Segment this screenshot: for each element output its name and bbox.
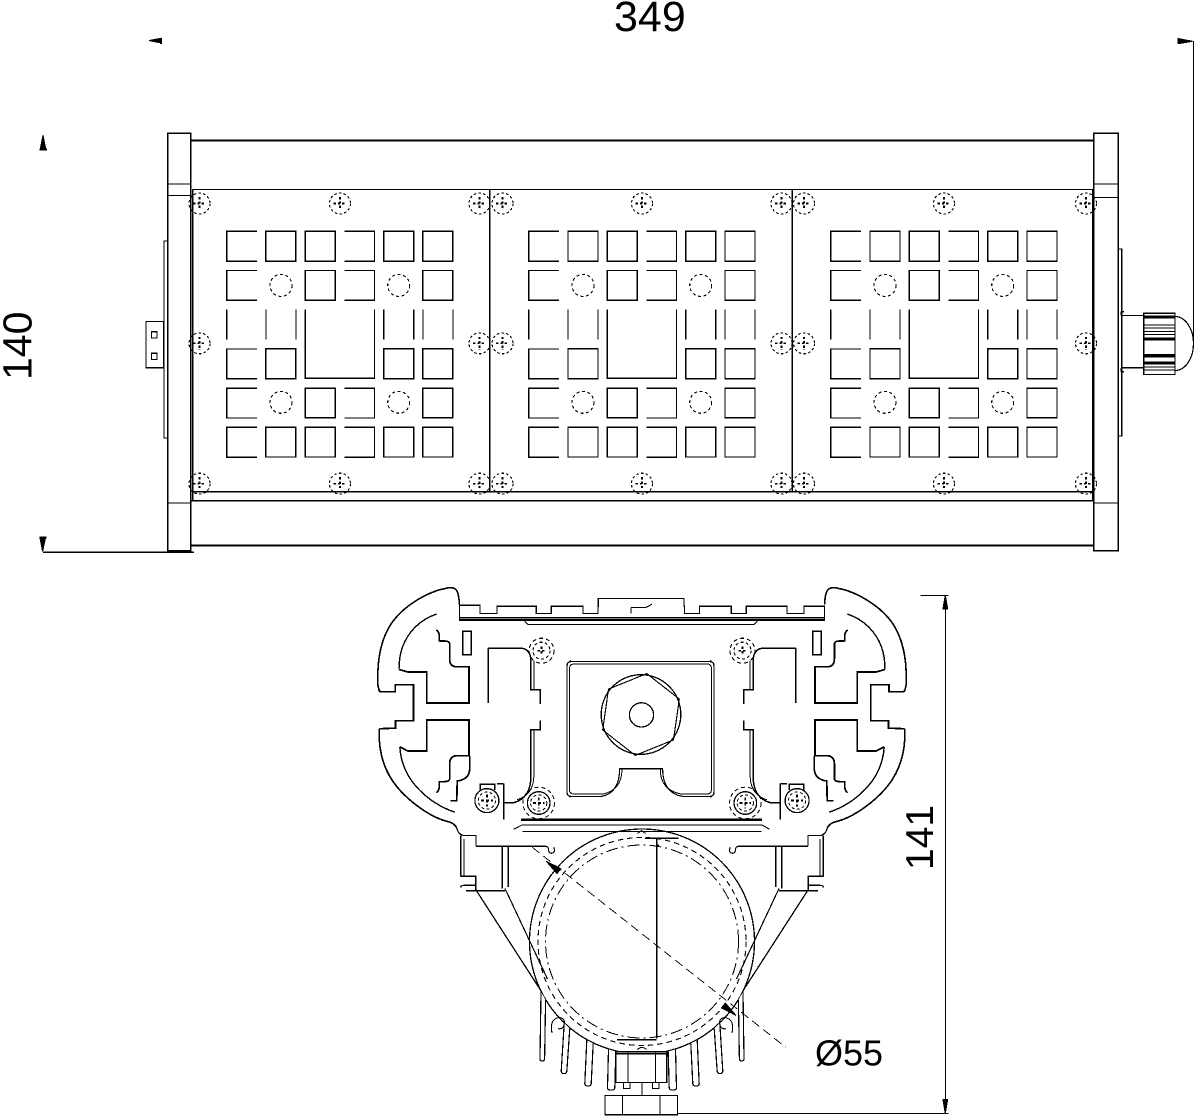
svg-text:349: 349 [614,0,686,41]
svg-text:140: 140 [0,312,41,380]
svg-text:141: 141 [899,805,942,870]
svg-text:Ø55: Ø55 [815,1033,883,1074]
